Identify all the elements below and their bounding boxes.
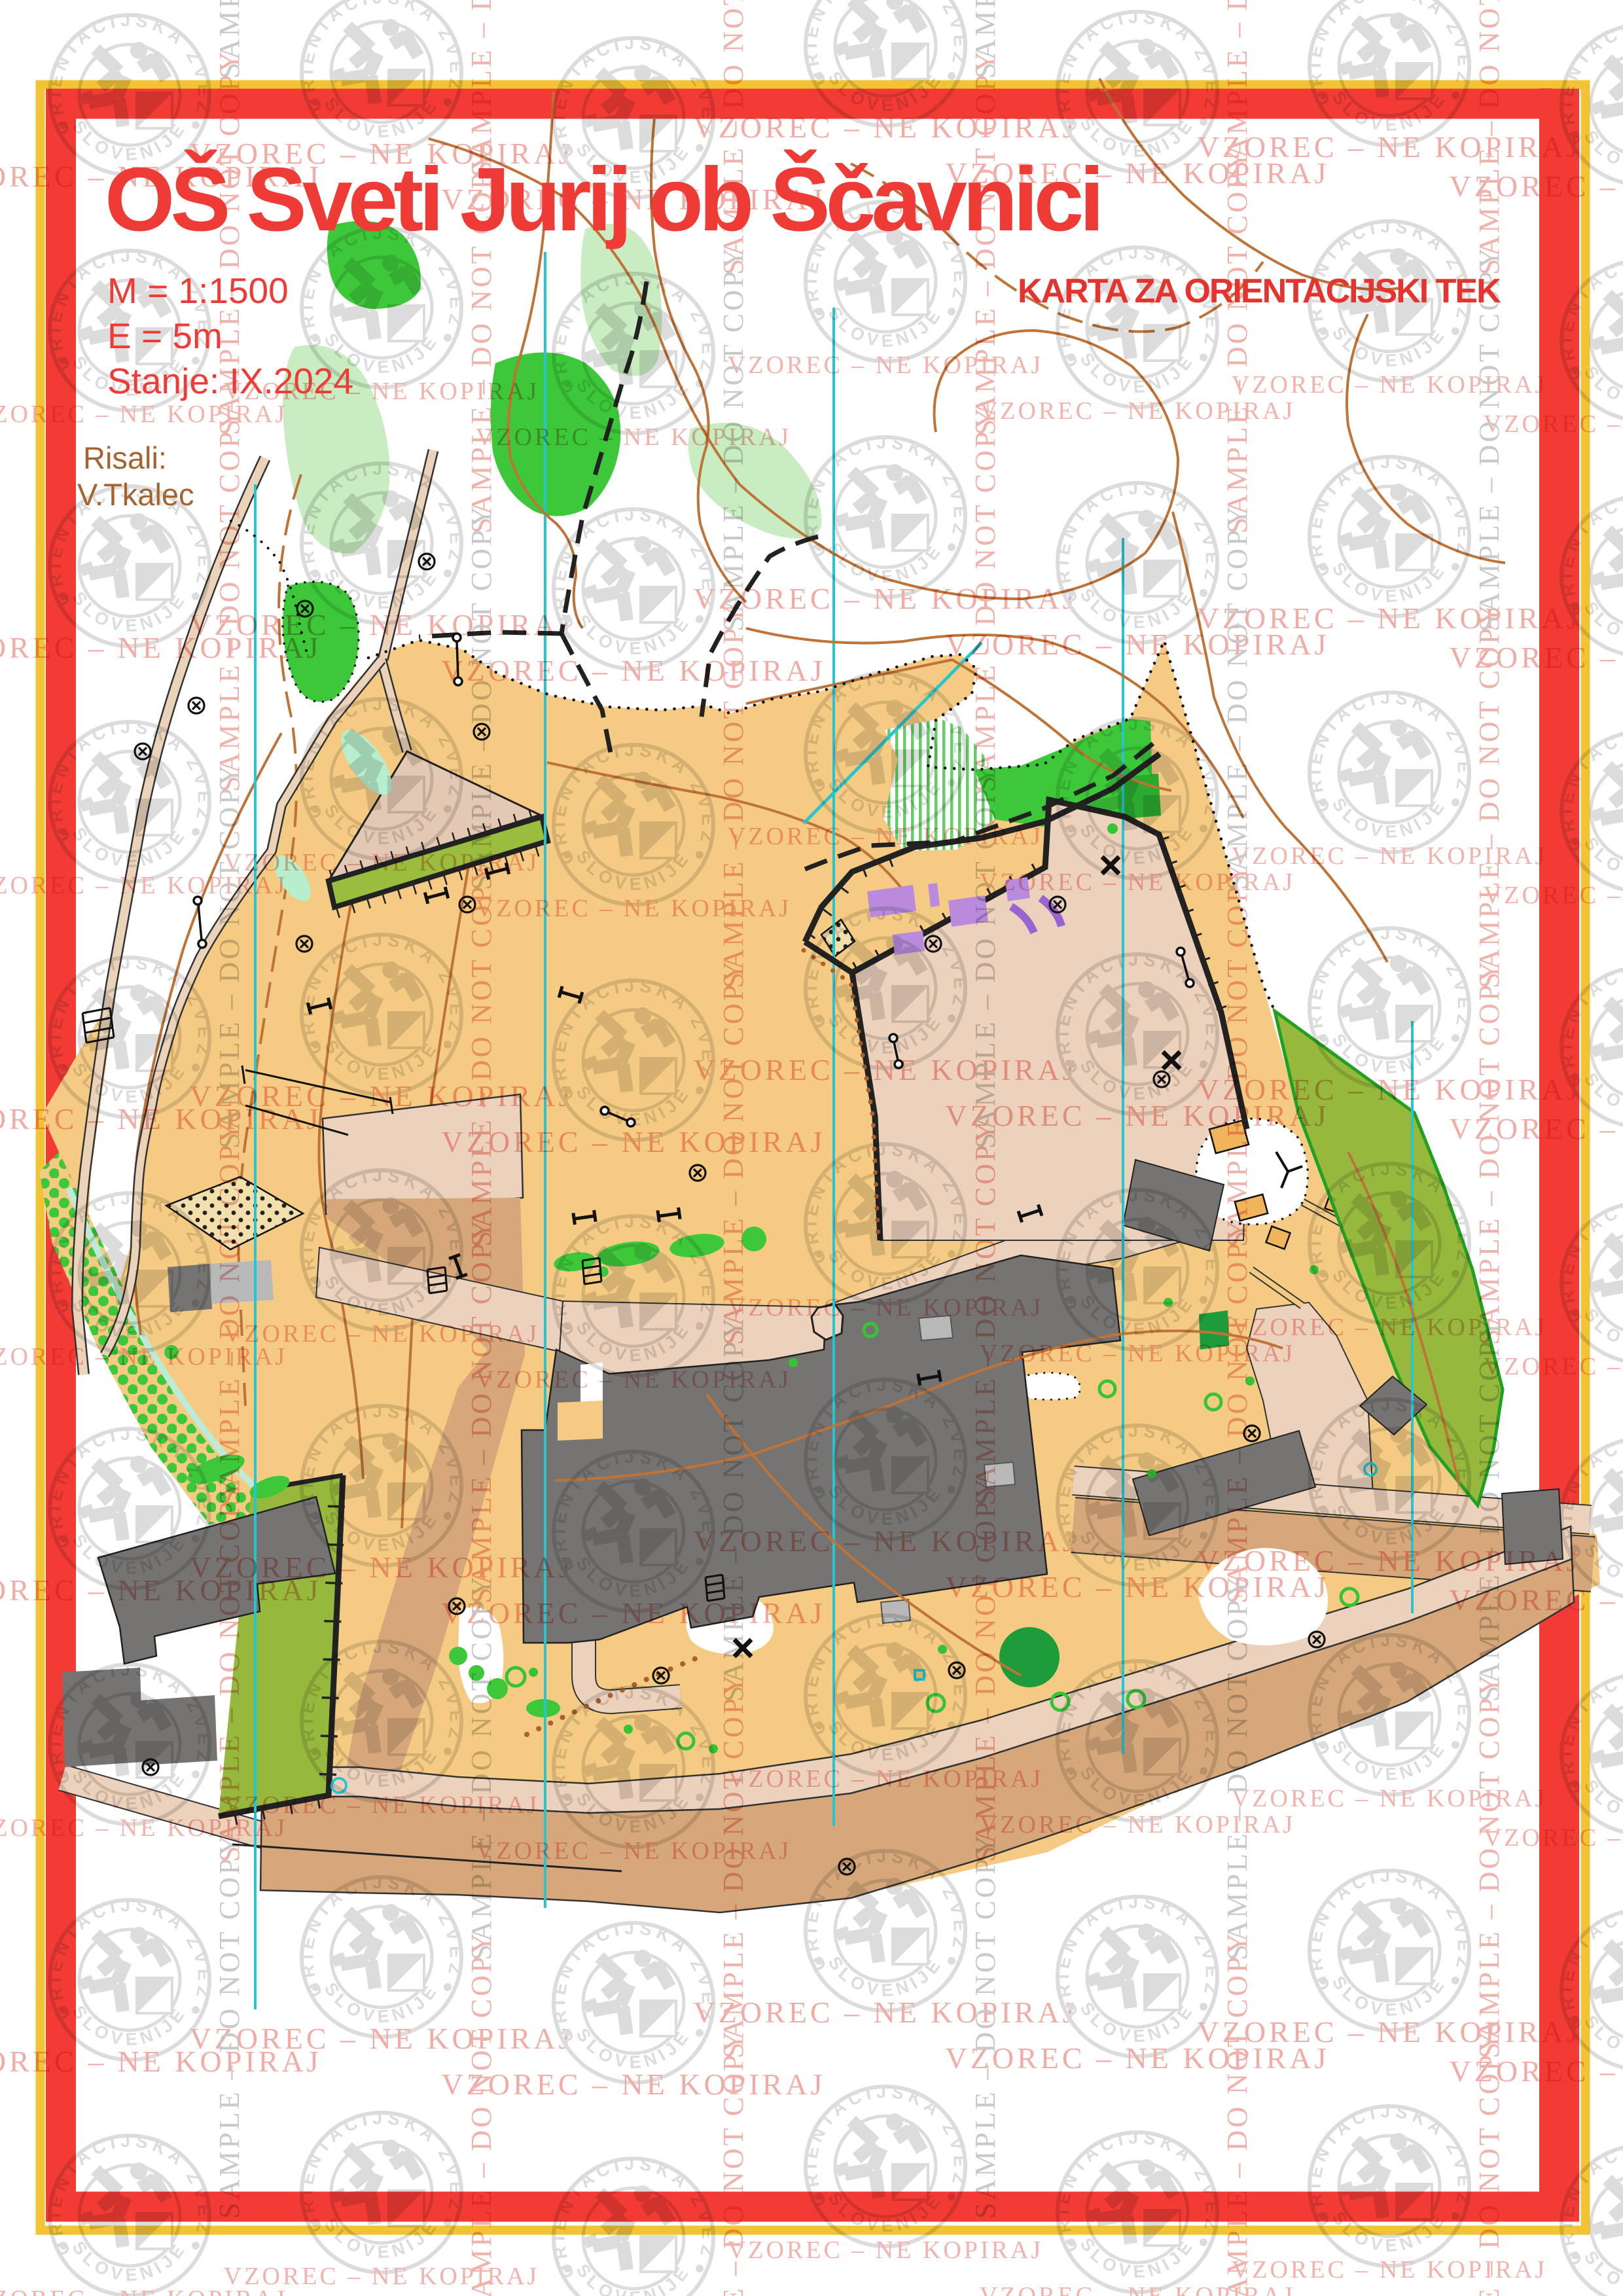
svg-text:SAMPLE – DO NOT COPY: SAMPLE – DO NOT COPY (969, 406, 1001, 792)
svg-text:VZOREC – NE KOPIRAJ: VZOREC – NE KOPIRAJ (694, 1053, 1078, 1086)
svg-text:SAMPLE – DO NOT COPY: SAMPLE – DO NOT COPY (465, 861, 497, 1247)
svg-text:SAMPLE – DO NOT COPY: SAMPLE – DO NOT COPY (969, 1833, 1001, 2219)
svg-text:M = 1:1500: M = 1:1500 (107, 270, 289, 311)
svg-text:VZOREC – NE KOPIRAJ: VZOREC – NE KOPIRAJ (442, 654, 826, 687)
svg-text:VZOREC – NE KOPIRAJ: VZOREC – NE KOPIRAJ (728, 2236, 1043, 2264)
svg-text:VZOREC – NE KOPIRAJ: VZOREC – NE KOPIRAJ (190, 608, 574, 641)
svg-text:SAMPLE – DO NOT COPY: SAMPLE – DO NOT COPY (213, 1833, 245, 2219)
svg-text:SAMPLE – DO NOT COPY: SAMPLE – DO NOT COPY (1473, 1316, 1505, 1702)
svg-text:SAMPLE – DO NOT COPY: SAMPLE – DO NOT COPY (969, 762, 1001, 1149)
svg-text:SAMPLE – DO NOT COPY: SAMPLE – DO NOT COPY (1473, 602, 1505, 988)
svg-text:E = 5m: E = 5m (107, 315, 223, 356)
svg-text:KARTA ZA ORIENTACIJSKI TEK: KARTA ZA ORIENTACIJSKI TEK (1018, 272, 1501, 310)
svg-text:SAMPLE – DO NOT COPY: SAMPLE – DO NOT COPY (1473, 1672, 1505, 2058)
svg-text:Stanje: IX.2024: Stanje: IX.2024 (107, 361, 353, 401)
svg-text:SAMPLE – DO NOT COPY: SAMPLE – DO NOT COPY (969, 1476, 1001, 1862)
svg-text:VZOREC – NE KOPIRAJ: VZOREC – NE KOPIRAJ (694, 582, 1078, 615)
svg-text:VZOREC – NE KOPIRAJ: VZOREC – NE KOPIRAJ (442, 1596, 826, 1630)
svg-text:VZOREC – NE KOPIRAJ: VZOREC – NE KOPIRAJ (1198, 130, 1582, 164)
svg-text:VZOREC – NE KOPIRAJ: VZOREC – NE KOPIRAJ (694, 1996, 1078, 2029)
svg-text:SAMPLE – DO NOT COPY: SAMPLE – DO NOT COPY (1473, 959, 1505, 1345)
svg-text:SAMPLE – DO NOT COPY: SAMPLE – DO NOT COPY (465, 1574, 497, 1960)
svg-text:SAMPLE – DO NOT COPY: SAMPLE – DO NOT COPY (1221, 1931, 1253, 2296)
svg-text:SAMPLE – DO NOT COPY: SAMPLE – DO NOT COPY (213, 762, 245, 1149)
svg-text:SAMPLE – DO NOT COPY: SAMPLE – DO NOT COPY (1221, 504, 1253, 890)
svg-text:VZOREC – NE KOPIRAJ: VZOREC – NE KOPIRAJ (1198, 601, 1582, 635)
svg-text:SAMPLE – DO NOT COPY: SAMPLE – DO NOT COPY (717, 2029, 749, 2296)
svg-text:SAMPLE – DO NOT COPY: SAMPLE – DO NOT COPY (717, 1316, 749, 1702)
svg-text:SAMPLE – DO NOT COPY: SAMPLE – DO NOT COPY (213, 406, 245, 792)
svg-text:VZOREC – NE KOPIRAJ: VZOREC – NE KOPIRAJ (190, 2022, 574, 2055)
svg-text:SAMPLE – DO NOT COPY: SAMPLE – DO NOT COPY (213, 1119, 245, 1505)
svg-text:Risali:: Risali: (83, 440, 167, 475)
svg-text:V.Tkalec: V.Tkalec (77, 477, 194, 512)
svg-text:SAMPLE – DO NOT COPY: SAMPLE – DO NOT COPY (1221, 1217, 1253, 1604)
svg-text:SAMPLE – DO NOT COPY: SAMPLE – DO NOT COPY (1473, 0, 1505, 275)
svg-text:SAMPLE – DO NOT COPY: SAMPLE – DO NOT COPY (465, 1931, 497, 2296)
svg-text:SAMPLE – DO NOT COPY: SAMPLE – DO NOT COPY (717, 959, 749, 1345)
svg-text:SAMPLE – DO NOT COPY: SAMPLE – DO NOT COPY (717, 602, 749, 988)
svg-text:VZOREC – NE KOPIRAJ: VZOREC – NE KOPIRAJ (694, 111, 1078, 144)
svg-text:VZOREC – NE KOPIRAJ: VZOREC – NE KOPIRAJ (190, 1551, 574, 1584)
svg-text:SAMPLE – DO NOT COPY: SAMPLE – DO NOT COPY (1473, 2029, 1505, 2296)
svg-text:SAMPLE – DO NOT COPY: SAMPLE – DO NOT COPY (465, 504, 497, 890)
svg-text:VZOREC – NE KOPIRAJ: VZOREC – NE KOPIRAJ (442, 2068, 826, 2101)
svg-text:SAMPLE – DO NOT COPY: SAMPLE – DO NOT COPY (969, 1119, 1001, 1505)
svg-text:OŠ Sveti Jurij ob Ščavnici: OŠ Sveti Jurij ob Ščavnici (105, 149, 1100, 250)
svg-text:VZOREC – NE KOPIRAJ: VZOREC – NE KOPIRAJ (1198, 1544, 1582, 1577)
svg-text:SAMPLE – DO NOT COPY: SAMPLE – DO NOT COPY (1221, 861, 1253, 1247)
svg-text:VZOREC – NE KOPIRAJ: VZOREC – NE KOPIRAJ (1198, 1073, 1582, 1106)
svg-text:VZOREC – NE KOPIRAJ: VZOREC – NE KOPIRAJ (694, 1524, 1078, 1558)
svg-text:VZOREC – NE KOPIRAJ: VZOREC – NE KOPIRAJ (1198, 2015, 1582, 2049)
svg-text:SAMPLE – DO NOT COPY: SAMPLE – DO NOT COPY (465, 1217, 497, 1604)
svg-text:VZOREC – NE KOPIRAJ: VZOREC – NE KOPIRAJ (190, 1079, 574, 1113)
svg-text:SAMPLE – DO NOT COPY: SAMPLE – DO NOT COPY (717, 245, 749, 632)
svg-text:SAMPLE – DO NOT COPY: SAMPLE – DO NOT COPY (213, 1476, 245, 1862)
svg-text:SAMPLE – DO NOT COPY: SAMPLE – DO NOT COPY (1221, 147, 1253, 533)
svg-text:SAMPLE – DO NOT COPY: SAMPLE – DO NOT COPY (1221, 1574, 1253, 1960)
svg-text:SAMPLE – DO NOT COPY: SAMPLE – DO NOT COPY (717, 1672, 749, 2058)
svg-text:VZOREC – NE KOPIRAJ: VZOREC – NE KOPIRAJ (442, 1125, 826, 1158)
